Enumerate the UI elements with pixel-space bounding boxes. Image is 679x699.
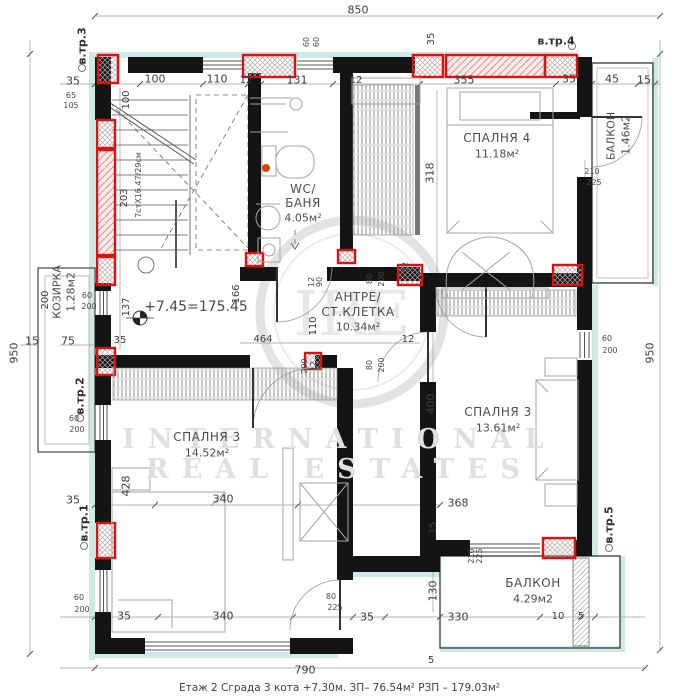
staircase [100, 95, 299, 273]
walls [95, 57, 592, 654]
elevation-symbol [126, 311, 154, 325]
floor-plan-page: IRE [0, 0, 679, 699]
watermark-monogram: IRE [294, 277, 410, 350]
floor-plan-drawing: IRE [0, 0, 679, 699]
balcony-bottom-right-outline [440, 556, 620, 648]
balcony-top-right-outline [592, 63, 653, 283]
canopy-outline [38, 268, 95, 452]
boiler-dot [262, 164, 270, 172]
drawing-caption: Етаж 2 Сграда 3 кота +7.30м. ЗП– 76.54м²… [179, 682, 500, 694]
